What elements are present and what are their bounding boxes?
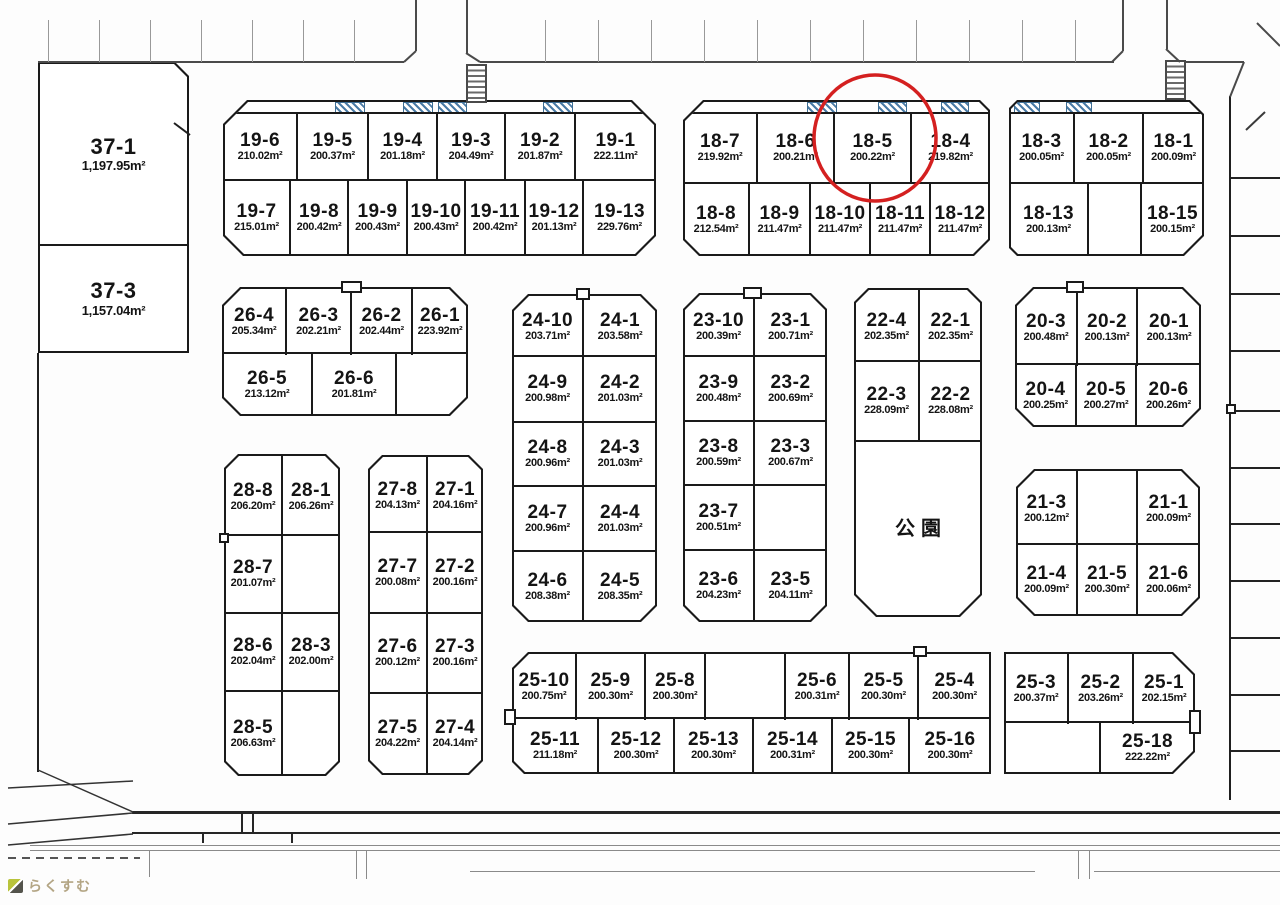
boundary-tick bbox=[252, 20, 253, 62]
lot-area: 202.00m² bbox=[289, 656, 334, 668]
lot-25-10[interactable]: 25-10200.75m² bbox=[512, 654, 576, 720]
lot-28-1[interactable]: 28-1206.26m² bbox=[282, 456, 340, 537]
lot-19-12[interactable]: 19-12201.13m² bbox=[525, 180, 583, 256]
lot-24-2[interactable]: 24-2201.03m² bbox=[583, 356, 657, 422]
lot-23-6[interactable]: 23-6204.23m² bbox=[683, 550, 754, 622]
lot-area: 200.06m² bbox=[1146, 584, 1191, 596]
road-line bbox=[366, 850, 367, 879]
lot-number: 23-9 bbox=[698, 373, 738, 392]
block-25R: 25-3200.37m²25-2203.26m²25-1202.15m²25-1… bbox=[1004, 652, 1195, 774]
boundary-notch bbox=[504, 709, 516, 725]
lot-number: 公園 bbox=[889, 519, 947, 539]
block-22: 22-4202.35m²22-1202.35m²22-3228.09m²22-2… bbox=[854, 288, 982, 617]
lot-area: 200.98m² bbox=[525, 393, 570, 405]
lot-28-3[interactable]: 28-3202.00m² bbox=[282, 613, 340, 691]
lot-area: 200.39m² bbox=[696, 331, 741, 343]
lot-number: 25-9 bbox=[590, 671, 630, 690]
lot-number: 18-11 bbox=[875, 204, 925, 223]
lot-37-1[interactable]: 37-11,197.95m² bbox=[38, 64, 189, 245]
lot-20-6[interactable]: 20-6200.26m² bbox=[1136, 364, 1201, 427]
lot-area: 208.38m² bbox=[525, 591, 570, 603]
lot-22-4[interactable]: 22-4202.35m² bbox=[854, 290, 919, 363]
lot-area: 210.02m² bbox=[238, 151, 283, 163]
cell-divider bbox=[704, 654, 706, 720]
lot-area: 206.63m² bbox=[231, 738, 276, 750]
lot-area: 206.20m² bbox=[231, 501, 276, 513]
boundary-notch bbox=[341, 281, 362, 293]
lot-18-3[interactable]: 18-3200.05m² bbox=[1009, 113, 1074, 183]
road-line bbox=[1122, 0, 1124, 51]
lot-18-9[interactable]: 18-9211.47m² bbox=[749, 183, 810, 256]
lot-area: 200.71m² bbox=[768, 331, 813, 343]
lot-number: 27-5 bbox=[377, 718, 417, 737]
lot-area: 215.01m² bbox=[234, 222, 279, 234]
lot-area: 213.12m² bbox=[245, 389, 290, 401]
lot-25-1[interactable]: 25-1202.15m² bbox=[1133, 654, 1195, 724]
lot-19-9[interactable]: 19-9200.43m² bbox=[348, 180, 407, 256]
lot-19-7[interactable]: 19-7215.01m² bbox=[223, 180, 290, 256]
lot-number: 19-1 bbox=[595, 131, 635, 150]
lot-25-3[interactable]: 25-3200.37m² bbox=[1004, 654, 1068, 724]
road-line bbox=[480, 61, 1114, 63]
lot-area: 219.92m² bbox=[698, 152, 743, 164]
lot-27-7[interactable]: 27-7200.08m² bbox=[368, 532, 427, 613]
cell-divider bbox=[753, 485, 755, 550]
lot-number: 18-5 bbox=[852, 132, 892, 151]
lot-18-11[interactable]: 18-11211.47m² bbox=[870, 183, 930, 256]
lot-area: 201.03m² bbox=[598, 458, 643, 470]
lot-23-8[interactable]: 23-8200.59m² bbox=[683, 421, 754, 485]
lot-area: 200.96m² bbox=[525, 523, 570, 535]
road-line bbox=[30, 850, 1280, 851]
lot-18-6[interactable]: 18-6200.21m² bbox=[757, 113, 834, 183]
road-line bbox=[1089, 850, 1090, 879]
lot-area: 1,157.04m² bbox=[82, 304, 146, 318]
lot-area: 200.09m² bbox=[1151, 152, 1196, 164]
lot-area: 200.09m² bbox=[1024, 584, 1069, 596]
lot-number: 18-15 bbox=[1147, 204, 1198, 223]
lot-number: 18-8 bbox=[696, 204, 736, 223]
lot-area: 200.16m² bbox=[433, 657, 478, 669]
road-line bbox=[415, 0, 417, 51]
lot-number: 26-2 bbox=[361, 306, 401, 325]
lot-number: 24-10 bbox=[522, 311, 573, 330]
lot-area: 211.47m² bbox=[878, 224, 922, 236]
lot-area: 212.54m² bbox=[694, 224, 739, 236]
lot-25-5[interactable]: 25-5200.30m² bbox=[849, 654, 918, 720]
lot-20-2[interactable]: 20-2200.13m² bbox=[1077, 289, 1137, 366]
lot-18-8[interactable]: 18-8212.54m² bbox=[683, 183, 749, 256]
lot-area: 200.30m² bbox=[861, 691, 906, 703]
block-25L-area: 25-10200.75m²25-9200.30m²25-8200.30m²25-… bbox=[514, 654, 989, 772]
lot-number: 23-1 bbox=[770, 311, 810, 330]
lot-area: 223.92m² bbox=[418, 326, 463, 338]
boundary-tick bbox=[1075, 20, 1076, 62]
block-27-area: 27-8204.13m²27-1204.16m²27-7200.08m²27-2… bbox=[370, 457, 481, 773]
lot-area: 200.16m² bbox=[433, 577, 478, 589]
lot-number: 19-5 bbox=[312, 131, 352, 150]
block-27: 27-8204.13m²27-1204.16m²27-7200.08m²27-2… bbox=[368, 455, 483, 775]
lot-area: 205.34m² bbox=[232, 326, 277, 338]
lot-area: 200.67m² bbox=[768, 457, 813, 469]
lot-number: 27-8 bbox=[377, 480, 417, 499]
lot-area: 200.37m² bbox=[310, 151, 355, 163]
lot-24-6[interactable]: 24-6208.38m² bbox=[512, 551, 583, 622]
lot-25-15[interactable]: 25-15200.30m² bbox=[832, 718, 909, 774]
lot-number: 21-4 bbox=[1026, 564, 1066, 583]
lot-number: 25-14 bbox=[767, 730, 818, 749]
lot-area: 204.14m² bbox=[433, 738, 478, 750]
lot-26-2[interactable]: 26-2202.44m² bbox=[351, 289, 412, 355]
boundary-tick bbox=[1231, 177, 1280, 179]
boundary-tick bbox=[1231, 467, 1280, 469]
lot-21-5[interactable]: 21-5200.30m² bbox=[1077, 544, 1137, 616]
lot-28-5[interactable]: 28-5206.63m² bbox=[224, 691, 282, 776]
lot-27-3[interactable]: 27-3200.16m² bbox=[427, 613, 483, 693]
lot-20-3[interactable]: 20-3200.48m² bbox=[1015, 289, 1077, 366]
boundary-notch bbox=[576, 288, 590, 300]
lot-23-1[interactable]: 23-1200.71m² bbox=[754, 295, 827, 358]
lot-26-6[interactable]: 26-6201.81m² bbox=[312, 353, 396, 416]
lot-area: 202.44m² bbox=[359, 326, 404, 338]
lot-number: 27-7 bbox=[377, 557, 417, 576]
block-20: 20-3200.48m²20-2200.13m²20-1200.13m²20-4… bbox=[1015, 287, 1201, 427]
lot-27-2[interactable]: 27-2200.16m² bbox=[427, 532, 483, 613]
lot-area: 200.42m² bbox=[297, 222, 342, 234]
lot-23-7[interactable]: 23-7200.51m² bbox=[683, 485, 754, 550]
lot-number: 18-9 bbox=[759, 204, 799, 223]
lot-24-5[interactable]: 24-5208.35m² bbox=[583, 551, 657, 622]
lot-19-11[interactable]: 19-11200.42m² bbox=[465, 180, 525, 256]
lot-24-8[interactable]: 24-8200.96m² bbox=[512, 422, 583, 486]
road-line bbox=[291, 832, 293, 843]
road-edge bbox=[404, 51, 416, 62]
lot-area: 222.22m² bbox=[1125, 752, 1170, 764]
lot-21-6[interactable]: 21-6200.06m² bbox=[1137, 544, 1200, 616]
lot-23-5[interactable]: 23-5204.11m² bbox=[754, 550, 827, 622]
lot-area: 203.71m² bbox=[525, 331, 570, 343]
block-28: 28-8206.20m²28-1206.26m²28-7201.07m²28-6… bbox=[224, 454, 340, 776]
lot-25-12[interactable]: 25-12200.30m² bbox=[598, 718, 674, 774]
lot-22-1[interactable]: 22-1202.35m² bbox=[919, 290, 982, 363]
lot-area: 200.22m² bbox=[850, 152, 895, 164]
lot-area: 200.42m² bbox=[473, 222, 518, 234]
block-23-area: 23-10200.39m²23-1200.71m²23-9200.48m²23-… bbox=[685, 295, 825, 620]
boundary-tick bbox=[598, 20, 599, 62]
block-19: 19-6210.02m²19-5200.37m²19-4201.18m²19-3… bbox=[223, 100, 656, 256]
lot-37-3[interactable]: 37-31,157.04m² bbox=[38, 245, 189, 353]
lot-24-1[interactable]: 24-1203.58m² bbox=[583, 296, 657, 358]
lot-area: 200.30m² bbox=[653, 691, 698, 703]
lot-number: 24-9 bbox=[527, 373, 567, 392]
lot-number: 24-7 bbox=[527, 503, 567, 522]
lot-19-2[interactable]: 19-2201.87m² bbox=[505, 113, 575, 180]
lot-24-7[interactable]: 24-7200.96m² bbox=[512, 486, 583, 551]
lot-area: 200.09m² bbox=[1146, 513, 1191, 525]
lot-number: 28-7 bbox=[233, 558, 273, 577]
boundary-notch bbox=[1066, 281, 1084, 293]
plot-map: らくすむ 19-6210.02m²19-5200.37m²19-4201.18m… bbox=[0, 0, 1280, 905]
lot-area: 200.30m² bbox=[932, 691, 977, 703]
lot-area: 200.48m² bbox=[1024, 332, 1069, 344]
lot-25-18[interactable]: 25-18222.22m² bbox=[1100, 722, 1195, 774]
lot-19-1[interactable]: 19-1222.11m² bbox=[575, 113, 656, 180]
block-26: 26-4205.34m²26-3202.21m²26-2202.44m²26-1… bbox=[222, 287, 468, 416]
lot-19-4[interactable]: 19-4201.18m² bbox=[368, 113, 437, 180]
lot-area: 200.30m² bbox=[614, 750, 659, 762]
lot-area: 200.05m² bbox=[1019, 152, 1064, 164]
lot-18-12[interactable]: 18-12211.47m² bbox=[930, 183, 990, 256]
lot-area: 203.58m² bbox=[598, 331, 643, 343]
lot-area: 229.76m² bbox=[597, 222, 642, 234]
lot-27-6[interactable]: 27-6200.12m² bbox=[368, 613, 427, 693]
lot-area: 204.22m² bbox=[375, 738, 420, 750]
lot-number: 24-3 bbox=[600, 438, 640, 457]
lot-21-1[interactable]: 21-1200.09m² bbox=[1137, 471, 1200, 546]
lot-number: 25-15 bbox=[845, 730, 896, 749]
boundary-tick bbox=[150, 20, 151, 62]
lot-number: 19-13 bbox=[594, 202, 645, 221]
lot-area: 200.31m² bbox=[770, 750, 815, 762]
lot-number: 24-1 bbox=[600, 311, 640, 330]
lot-area: 201.03m² bbox=[598, 523, 643, 535]
lot-area: 200.37m² bbox=[1014, 693, 1059, 705]
lot-area: 201.18m² bbox=[380, 151, 425, 163]
lot-area: 200.43m² bbox=[414, 222, 459, 234]
lot-number: 24-4 bbox=[600, 503, 640, 522]
lot-27-8[interactable]: 27-8204.13m² bbox=[368, 457, 427, 534]
lot-area: 211.47m² bbox=[818, 224, 862, 236]
lot-area: 201.81m² bbox=[332, 389, 377, 401]
lot-area: 222.11m² bbox=[593, 151, 637, 163]
lot-number: 25-3 bbox=[1016, 673, 1056, 692]
lot-25-16[interactable]: 25-16200.30m² bbox=[909, 718, 991, 774]
lot-number: 27-2 bbox=[435, 557, 475, 576]
boundary-tick bbox=[1231, 523, 1280, 525]
lot-20-5[interactable]: 20-5200.27m² bbox=[1076, 364, 1136, 427]
road-edge bbox=[8, 813, 133, 824]
road-edge bbox=[1257, 23, 1280, 46]
lot-number: 18-2 bbox=[1088, 132, 1128, 151]
lot-area: 202.15m² bbox=[1142, 693, 1187, 705]
lot-21-4[interactable]: 21-4200.09m² bbox=[1016, 544, 1077, 616]
boundary-tick bbox=[545, 20, 546, 62]
lot-18-7[interactable]: 18-7219.92m² bbox=[683, 113, 757, 183]
road-line bbox=[38, 61, 404, 63]
lot-25-6[interactable]: 25-6200.31m² bbox=[785, 654, 849, 720]
lot-27-1[interactable]: 27-1204.16m² bbox=[427, 457, 483, 534]
boundary-tick bbox=[810, 20, 811, 62]
block-23: 23-10200.39m²23-1200.71m²23-9200.48m²23-… bbox=[683, 293, 827, 622]
lot-19-10[interactable]: 19-10200.43m² bbox=[407, 180, 465, 256]
boundary-tick bbox=[863, 20, 864, 62]
road-line bbox=[132, 811, 1280, 814]
lot-number: 18-3 bbox=[1021, 132, 1061, 151]
lot-18-1[interactable]: 18-1200.09m² bbox=[1143, 113, 1204, 183]
boundary-notch bbox=[913, 646, 927, 657]
lot-number: 26-5 bbox=[247, 369, 287, 388]
lot-area: 206.26m² bbox=[289, 501, 334, 513]
lot-number: 20-4 bbox=[1025, 380, 1065, 399]
lot-number: 27-1 bbox=[435, 480, 475, 499]
lot-number: 23-6 bbox=[698, 570, 738, 589]
lot-26-3[interactable]: 26-3202.21m² bbox=[286, 289, 351, 355]
lot-number: 20-2 bbox=[1087, 312, 1127, 331]
boundary-tick bbox=[757, 20, 758, 62]
lot-area: 211.47m² bbox=[757, 224, 801, 236]
lot-number: 25-6 bbox=[797, 671, 837, 690]
road-edge bbox=[38, 770, 133, 812]
lot-18-13[interactable]: 18-13200.13m² bbox=[1009, 183, 1088, 256]
lot-22-3[interactable]: 22-3228.09m² bbox=[854, 361, 919, 441]
lot-25-8[interactable]: 25-8200.30m² bbox=[645, 654, 705, 720]
lot-number: 24-6 bbox=[527, 571, 567, 590]
lot-area: 200.12m² bbox=[375, 657, 420, 669]
lot-area: 200.31m² bbox=[795, 691, 840, 703]
cell-divider bbox=[281, 691, 283, 776]
lot-number: 27-3 bbox=[435, 637, 475, 656]
lot-number: 23-3 bbox=[770, 437, 810, 456]
block-21: 21-3200.12m²21-1200.09m²21-4200.09m²21-5… bbox=[1016, 469, 1200, 616]
lot-area: 200.69m² bbox=[768, 393, 813, 405]
lot-number: 22-1 bbox=[930, 311, 970, 330]
road-line bbox=[1166, 0, 1168, 49]
lot-25-2[interactable]: 25-2203.26m² bbox=[1068, 654, 1133, 724]
block-18L: 18-7219.92m²18-6200.21m²18-5200.22m²18-4… bbox=[683, 100, 990, 256]
lot-18-10[interactable]: 18-10211.47m² bbox=[810, 183, 870, 256]
lot-number: 26-4 bbox=[234, 306, 274, 325]
lot-20-1[interactable]: 20-1200.13m² bbox=[1137, 289, 1201, 366]
lot-area: 202.35m² bbox=[928, 331, 973, 343]
lot-25-4[interactable]: 25-4200.30m² bbox=[918, 654, 991, 720]
lot-number: 25-11 bbox=[530, 730, 580, 749]
lot-25-11[interactable]: 25-11211.18m² bbox=[512, 718, 598, 774]
lot-area: 200.30m² bbox=[588, 691, 633, 703]
lot-18-2[interactable]: 18-2200.05m² bbox=[1074, 113, 1143, 183]
lot-number: 22-2 bbox=[930, 385, 970, 404]
road-line bbox=[356, 850, 357, 879]
lot-number: 19-4 bbox=[382, 131, 422, 150]
boundary-notch bbox=[743, 287, 762, 299]
lot-18-15[interactable]: 18-15200.15m² bbox=[1141, 183, 1204, 256]
lot-25-14[interactable]: 25-14200.31m² bbox=[753, 718, 832, 774]
lot-23-3[interactable]: 23-3200.67m² bbox=[754, 421, 827, 485]
block-18R: 18-3200.05m²18-2200.05m²18-1200.09m²18-1… bbox=[1009, 100, 1204, 256]
lot-number: 28-3 bbox=[291, 636, 331, 655]
lot-area: 200.05m² bbox=[1086, 152, 1131, 164]
lot-number: 18-13 bbox=[1023, 204, 1074, 223]
lot-area: 200.75m² bbox=[522, 691, 567, 703]
road-line bbox=[202, 832, 204, 843]
lot-19-13[interactable]: 19-13229.76m² bbox=[583, 180, 656, 256]
lot-area: 200.08m² bbox=[375, 577, 420, 589]
lot-number: 25-16 bbox=[924, 730, 975, 749]
lot-19-6[interactable]: 19-6210.02m² bbox=[223, 113, 297, 180]
lot-area: 204.13m² bbox=[375, 500, 420, 512]
lot-24-10[interactable]: 24-10203.71m² bbox=[512, 296, 583, 358]
lot-25-9[interactable]: 25-9200.30m² bbox=[576, 654, 645, 720]
road-edge bbox=[8, 834, 133, 845]
road-edge bbox=[466, 53, 480, 62]
road-line bbox=[132, 832, 1280, 834]
boundary-tick bbox=[1231, 580, 1280, 582]
block-22-area: 22-4202.35m²22-1202.35m²22-3228.09m²22-2… bbox=[856, 290, 980, 615]
boundary-tick bbox=[1231, 410, 1280, 412]
lot-27-5[interactable]: 27-5204.22m² bbox=[368, 693, 427, 775]
lot-area: 204.23m² bbox=[696, 590, 741, 602]
lot-19-8[interactable]: 19-8200.42m² bbox=[290, 180, 348, 256]
lot-22-2[interactable]: 22-2228.08m² bbox=[919, 361, 982, 441]
lot-28-7[interactable]: 28-7201.07m² bbox=[224, 535, 282, 613]
lot-26-1[interactable]: 26-1223.92m² bbox=[412, 289, 468, 355]
lot-area: 228.09m² bbox=[864, 405, 909, 417]
lot-area: 201.07m² bbox=[231, 578, 276, 590]
lot-area: 202.21m² bbox=[296, 326, 341, 338]
lot-21-3[interactable]: 21-3200.12m² bbox=[1016, 471, 1077, 546]
lot-23-10[interactable]: 23-10200.39m² bbox=[683, 295, 754, 358]
lot-19-3[interactable]: 19-3204.49m² bbox=[437, 113, 505, 180]
road-edge bbox=[8, 781, 133, 788]
lot-number: 26-6 bbox=[334, 369, 374, 388]
lot-27-4[interactable]: 27-4204.14m² bbox=[427, 693, 483, 775]
lot-area: 200.30m² bbox=[848, 750, 893, 762]
lot-number: 26-3 bbox=[298, 306, 338, 325]
lot-number: 28-1 bbox=[291, 481, 331, 500]
lot-area: 201.13m² bbox=[532, 222, 577, 234]
lot-25-13[interactable]: 25-13200.30m² bbox=[674, 718, 753, 774]
lot-28-8[interactable]: 28-8206.20m² bbox=[224, 456, 282, 537]
lot-28-6[interactable]: 28-6202.04m² bbox=[224, 613, 282, 691]
lot-18-4[interactable]: 18-4219.82m² bbox=[911, 113, 990, 183]
lot-number: 24-5 bbox=[600, 571, 640, 590]
lot-area: 200.30m² bbox=[691, 750, 736, 762]
lot-number: 28-8 bbox=[233, 481, 273, 500]
boundary-notch bbox=[1226, 404, 1236, 414]
boundary-tick bbox=[1022, 20, 1023, 62]
lot-24-9[interactable]: 24-9200.98m² bbox=[512, 356, 583, 422]
road-line bbox=[252, 812, 254, 833]
boundary-tick bbox=[916, 20, 917, 62]
lot-number: 37-1 bbox=[90, 136, 136, 158]
brand-logo[interactable]: らくすむ bbox=[8, 876, 92, 896]
boundary-tick bbox=[201, 20, 202, 62]
boundary-tick bbox=[99, 20, 100, 62]
lot-area: 201.03m² bbox=[598, 393, 643, 405]
boundary-tick bbox=[48, 20, 49, 62]
lot-26-4[interactable]: 26-4205.34m² bbox=[222, 289, 286, 355]
lot-number: 24-8 bbox=[527, 438, 567, 457]
lot-area: 204.16m² bbox=[433, 500, 478, 512]
lot-19-5[interactable]: 19-5200.37m² bbox=[297, 113, 368, 180]
dashed-center-line bbox=[8, 857, 140, 859]
lot-24-3[interactable]: 24-3201.03m² bbox=[583, 422, 657, 486]
boundary-tick bbox=[969, 20, 970, 62]
lot-number: 25-8 bbox=[655, 671, 695, 690]
lot-24-4[interactable]: 24-4201.03m² bbox=[583, 486, 657, 551]
lot-number: 25-4 bbox=[934, 671, 974, 690]
lot-number: 25-12 bbox=[610, 730, 661, 749]
lot-26-5[interactable]: 26-5213.12m² bbox=[222, 353, 312, 416]
lot-area: 200.13m² bbox=[1147, 332, 1192, 344]
lot-23-9[interactable]: 23-9200.48m² bbox=[683, 356, 754, 421]
road-edge bbox=[1230, 62, 1244, 97]
lot-18-5[interactable]: 18-5200.22m² bbox=[834, 113, 911, 183]
lot-20-4[interactable]: 20-4200.25m² bbox=[1015, 364, 1076, 427]
block-20-area: 20-3200.48m²20-2200.13m²20-1200.13m²20-4… bbox=[1017, 289, 1199, 425]
lot-23-2[interactable]: 23-2200.69m² bbox=[754, 356, 827, 421]
lot-number: 18-6 bbox=[775, 132, 815, 151]
boundary-tick bbox=[704, 20, 705, 62]
